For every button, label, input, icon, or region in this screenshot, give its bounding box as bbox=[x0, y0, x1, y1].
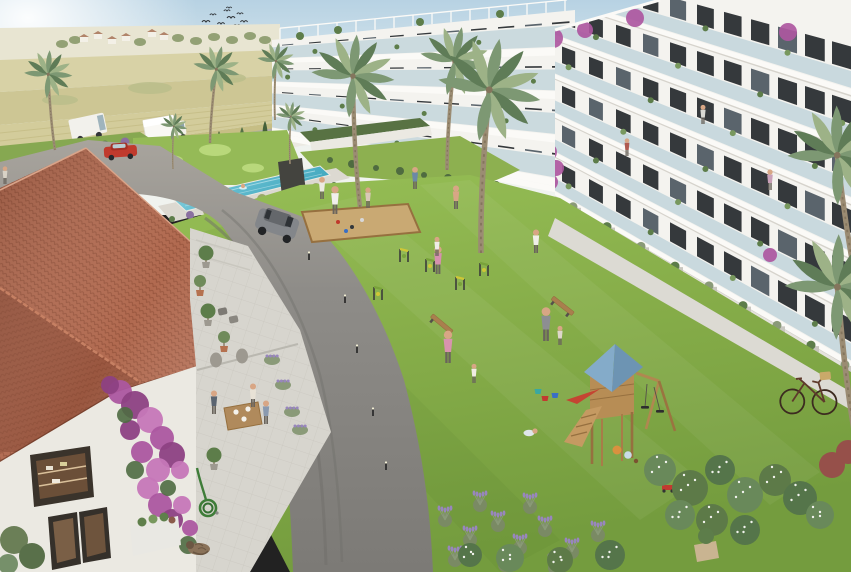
balcony-plant bbox=[394, 44, 399, 49]
bollard-light bbox=[356, 344, 358, 346]
herb bbox=[149, 515, 158, 524]
plate bbox=[233, 409, 238, 414]
wagon-wheel bbox=[662, 489, 665, 492]
balcony-plant bbox=[566, 64, 572, 70]
gym-accent bbox=[402, 254, 406, 258]
gym-accent bbox=[428, 264, 432, 268]
balcony-plant bbox=[675, 63, 681, 69]
apartment-window bbox=[525, 66, 542, 68]
balcony-plant bbox=[285, 75, 290, 80]
shrub bbox=[730, 515, 760, 545]
petanque-ball bbox=[336, 220, 340, 224]
vine-foliage bbox=[117, 407, 133, 423]
towel-stack bbox=[60, 462, 67, 466]
bougainvillea bbox=[779, 23, 797, 41]
bougainvillea bbox=[173, 496, 191, 514]
tree bbox=[259, 36, 271, 44]
balcony-plant bbox=[593, 158, 599, 164]
bollard-light bbox=[372, 407, 374, 409]
corner-olive-bush bbox=[19, 543, 45, 569]
door-glass bbox=[53, 518, 76, 563]
herb bbox=[160, 513, 169, 522]
plate bbox=[245, 406, 250, 411]
balcony-plant bbox=[702, 166, 708, 172]
bollard-light bbox=[385, 461, 387, 463]
shop-window bbox=[30, 446, 94, 507]
shrub bbox=[595, 540, 625, 570]
house bbox=[94, 34, 102, 39]
balcony-plant bbox=[593, 34, 599, 40]
petanque-ball bbox=[350, 225, 354, 229]
balcony-plant bbox=[648, 229, 654, 235]
house bbox=[122, 36, 130, 41]
hedge-bush bbox=[421, 172, 427, 178]
roof-garden-plant bbox=[416, 18, 424, 26]
hedge-bush bbox=[396, 167, 404, 175]
balcony-plant bbox=[531, 79, 536, 84]
potted-tree bbox=[201, 304, 216, 319]
hedge-bush bbox=[373, 165, 379, 171]
toy-bucket bbox=[542, 396, 549, 401]
bollard-light bbox=[344, 294, 346, 296]
house bbox=[108, 39, 116, 44]
roof-garden-plant bbox=[334, 26, 342, 34]
petanque-ball bbox=[344, 229, 348, 233]
herb bbox=[138, 518, 147, 527]
apartment-window bbox=[309, 68, 321, 69]
balcony-plant bbox=[730, 130, 736, 136]
bike-basket bbox=[819, 371, 831, 380]
potted-tree bbox=[207, 448, 222, 463]
vine-foliage bbox=[126, 461, 144, 479]
balcony-plant bbox=[812, 321, 818, 327]
door-glass bbox=[84, 513, 106, 557]
plant-pot bbox=[210, 464, 218, 470]
bougainvillea bbox=[182, 520, 198, 536]
stone-urn bbox=[210, 353, 222, 368]
planter-shrub bbox=[698, 528, 714, 544]
tree bbox=[226, 36, 238, 44]
bougainvillea bbox=[120, 420, 140, 440]
balcony-plant bbox=[675, 199, 681, 205]
putting-circle bbox=[242, 164, 264, 173]
balcony-plant bbox=[757, 91, 763, 97]
gym-accent bbox=[482, 268, 486, 272]
balcony-plant bbox=[422, 111, 427, 116]
tree bbox=[69, 36, 81, 44]
herb bbox=[169, 517, 176, 524]
bougainvillea bbox=[171, 461, 189, 479]
swing-seat bbox=[656, 410, 664, 413]
apartment-window bbox=[417, 67, 431, 68]
toy-ball bbox=[613, 446, 622, 455]
gym-accent bbox=[376, 292, 380, 296]
toy-ball bbox=[624, 451, 632, 459]
render-viewport bbox=[0, 0, 851, 572]
tree bbox=[208, 33, 220, 41]
potted-tree bbox=[199, 246, 214, 261]
roof-garden-plant bbox=[296, 32, 304, 40]
putting-circle bbox=[199, 144, 231, 156]
toddler-head bbox=[532, 428, 537, 433]
balcony-plant bbox=[648, 97, 654, 103]
roof-garden-plant bbox=[496, 10, 504, 18]
stone-urn bbox=[236, 349, 248, 364]
tree bbox=[190, 37, 202, 45]
balcony-plant bbox=[476, 40, 481, 45]
petanque-ball bbox=[360, 218, 364, 222]
tree bbox=[56, 40, 68, 48]
toy-bucket bbox=[552, 393, 559, 398]
shrub bbox=[644, 454, 676, 486]
tree bbox=[172, 34, 184, 42]
shrub bbox=[665, 500, 695, 530]
potted-tree bbox=[218, 331, 230, 343]
balcony-plant bbox=[312, 49, 317, 54]
bougainvillea bbox=[101, 376, 119, 394]
apartment-window bbox=[390, 67, 404, 68]
house bbox=[148, 32, 156, 37]
plate bbox=[241, 416, 246, 421]
shrub bbox=[705, 455, 735, 485]
architectural-render bbox=[0, 0, 851, 572]
towel-stack bbox=[46, 466, 53, 470]
window-interior bbox=[36, 453, 88, 499]
gym-accent bbox=[458, 282, 462, 286]
shrub bbox=[727, 477, 763, 513]
field-patch bbox=[128, 82, 172, 94]
balcony-plant bbox=[620, 129, 626, 135]
bougainvillea bbox=[763, 248, 777, 262]
plant-pot bbox=[204, 320, 212, 326]
balcony-plant bbox=[785, 50, 791, 56]
plant-pot bbox=[196, 290, 204, 296]
balcony-plant bbox=[812, 163, 818, 169]
balcony-plant bbox=[702, 25, 708, 31]
balcony-plant bbox=[566, 183, 572, 189]
cat-head bbox=[186, 541, 194, 549]
hedge-bush bbox=[327, 157, 333, 163]
house bbox=[160, 35, 168, 40]
hose-nozzle bbox=[215, 511, 218, 514]
balcony-plant bbox=[730, 275, 736, 281]
bollard-light bbox=[308, 251, 310, 253]
toy-ball bbox=[634, 459, 638, 463]
shrub bbox=[547, 547, 573, 572]
tree bbox=[244, 32, 256, 40]
house bbox=[80, 37, 88, 42]
plant-pot bbox=[220, 346, 228, 352]
vine-foliage bbox=[160, 480, 176, 496]
bougainvillea bbox=[626, 9, 644, 27]
balcony-plant bbox=[785, 203, 791, 209]
bougainvillea bbox=[131, 441, 153, 463]
balcony-plant bbox=[340, 104, 345, 109]
swing-seat bbox=[641, 406, 649, 409]
plant-pot bbox=[202, 262, 210, 268]
balcony-plant bbox=[757, 241, 763, 247]
swimmer bbox=[241, 184, 245, 188]
bush bbox=[169, 216, 175, 222]
towel-stack bbox=[52, 479, 60, 483]
tree bbox=[134, 38, 146, 46]
potted-tree bbox=[194, 275, 206, 287]
shrub bbox=[458, 543, 482, 567]
toy-bucket bbox=[535, 389, 542, 394]
